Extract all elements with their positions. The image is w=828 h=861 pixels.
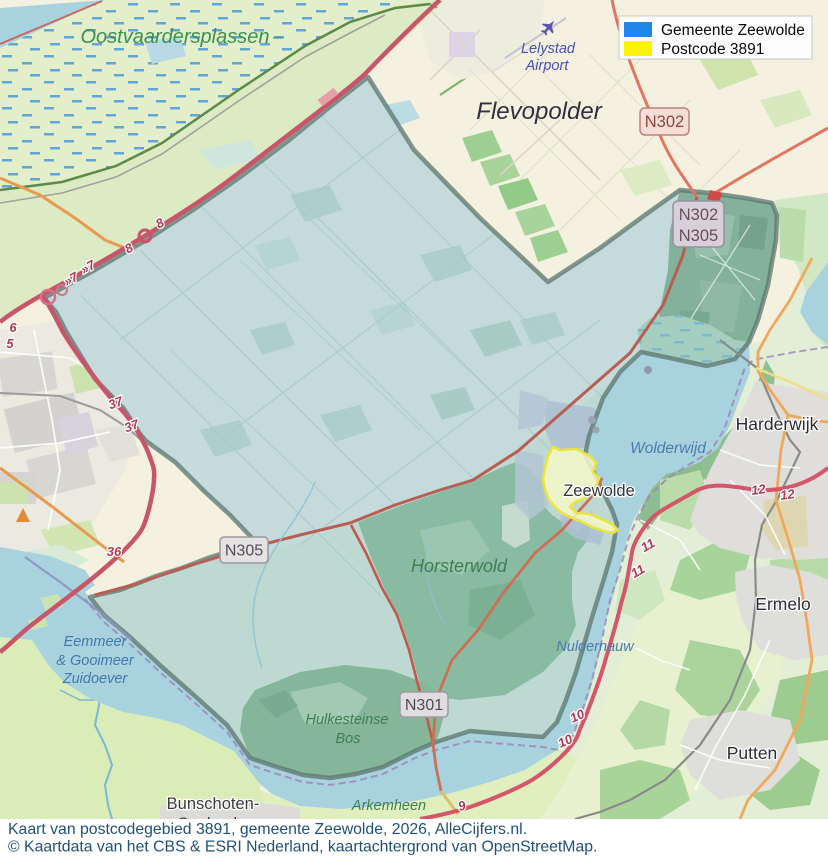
svg-text:Flevopolder: Flevopolder bbox=[476, 98, 602, 125]
svg-text:N302: N302 bbox=[645, 113, 684, 131]
svg-text:Bos: Bos bbox=[336, 731, 361, 747]
svg-text:N305: N305 bbox=[679, 227, 718, 245]
svg-text:N305: N305 bbox=[225, 543, 263, 560]
svg-text:5: 5 bbox=[6, 336, 14, 351]
svg-text:N302: N302 bbox=[679, 206, 718, 224]
svg-text:Eemmeer: Eemmeer bbox=[64, 634, 128, 650]
svg-text:Kaart van postcodegebied 3891,: Kaart van postcodegebied 3891, gemeente … bbox=[8, 821, 527, 838]
svg-text:Harderwijk: Harderwijk bbox=[736, 414, 819, 434]
svg-text:N301: N301 bbox=[405, 697, 443, 714]
svg-text:Zeewolde: Zeewolde bbox=[563, 482, 635, 500]
svg-text:12: 12 bbox=[750, 481, 767, 498]
svg-text:Horsterwold: Horsterwold bbox=[411, 556, 508, 576]
svg-text:Hulkesteinse: Hulkesteinse bbox=[305, 712, 388, 728]
svg-text:Postcode 3891: Postcode 3891 bbox=[661, 41, 764, 58]
svg-text:Arkemheen: Arkemheen bbox=[351, 798, 426, 814]
svg-text:12: 12 bbox=[779, 486, 796, 503]
svg-text:Nuldernauw: Nuldernauw bbox=[556, 639, 635, 655]
svg-text:Airport: Airport bbox=[525, 58, 570, 74]
svg-text:Gemeente Zeewolde: Gemeente Zeewolde bbox=[661, 22, 805, 39]
svg-text:Putten: Putten bbox=[727, 743, 778, 763]
svg-text:–: – bbox=[273, 29, 282, 46]
svg-text:© Kaartdata van het CBS & ESRI: © Kaartdata van het CBS & ESRI Nederland… bbox=[8, 839, 597, 856]
svg-text:Oostvaardersplassen: Oostvaardersplassen bbox=[81, 26, 270, 48]
svg-text:Bunschoten-: Bunschoten- bbox=[167, 795, 260, 813]
svg-text:Lelystad: Lelystad bbox=[521, 41, 576, 57]
svg-text:Zuidoever: Zuidoever bbox=[62, 671, 129, 687]
svg-text:Ermelo: Ermelo bbox=[755, 594, 810, 614]
svg-text:& Gooimeer: & Gooimeer bbox=[56, 653, 135, 669]
svg-text:Wolderwijd: Wolderwijd bbox=[630, 440, 707, 457]
svg-text:36: 36 bbox=[107, 544, 122, 559]
svg-text:6: 6 bbox=[9, 320, 17, 335]
